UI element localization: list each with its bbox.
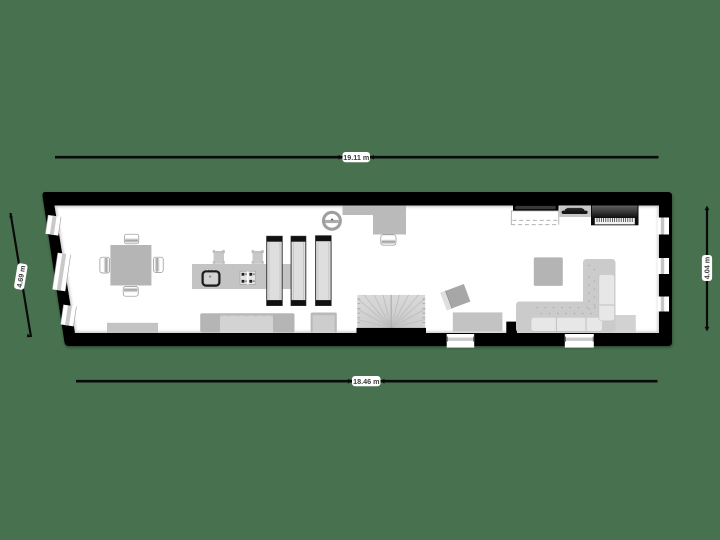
svg-text:18.46 m: 18.46 m xyxy=(353,377,379,386)
svg-text:19.11 m: 19.11 m xyxy=(343,153,369,162)
svg-text:4.04 m: 4.04 m xyxy=(703,257,712,279)
